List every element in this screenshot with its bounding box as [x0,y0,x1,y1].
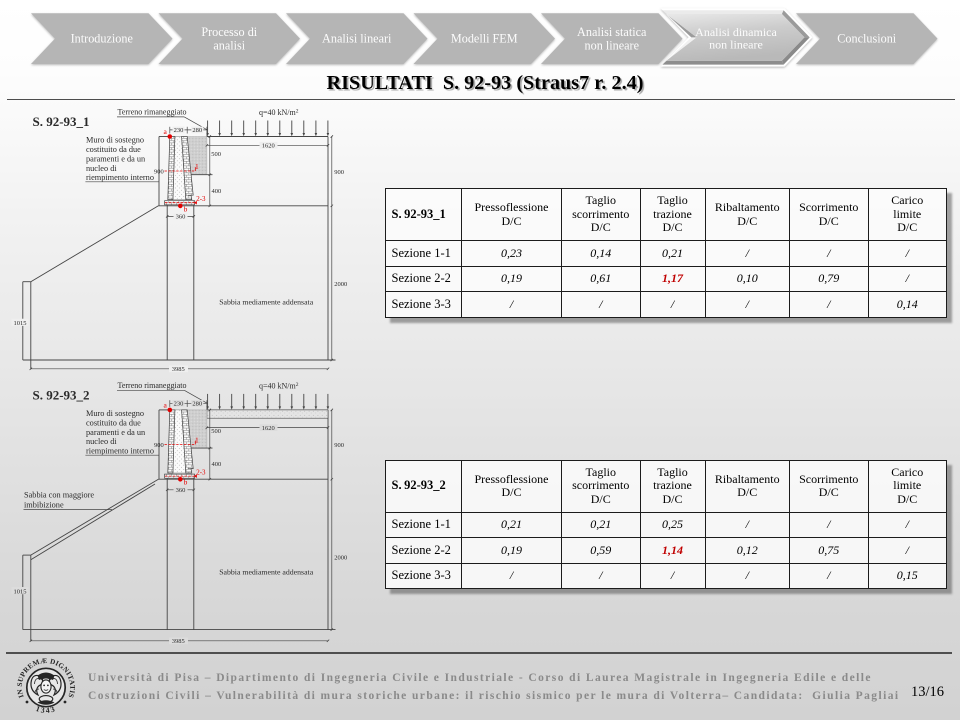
svg-text:1015: 1015 [14,320,27,327]
svg-text:Muro di sostegno: Muro di sostegno [86,136,144,145]
svg-text:230: 230 [174,127,184,134]
svg-text:a: a [163,127,167,136]
svg-text:non lineare: non lineare [585,39,639,53]
svg-text:Muro di sostegno: Muro di sostegno [86,409,144,418]
svg-text:280: 280 [192,127,202,134]
svg-text:280: 280 [192,401,202,408]
svg-text:900: 900 [154,442,164,449]
svg-text:S. 92-93_1: S. 92-93_1 [33,114,90,129]
svg-text:Terreno rimaneggiato: Terreno rimaneggiato [118,108,187,117]
svg-text:imbibizione: imbibizione [24,500,64,509]
svg-text:a: a [163,401,167,410]
svg-text:Analisi lineari: Analisi lineari [322,32,392,46]
svg-text:paramenti e da un: paramenti e da un [86,428,146,437]
svg-text:q=40 kN/m2: q=40 kN/m2 [259,108,299,117]
svg-text:1015: 1015 [14,589,27,596]
svg-text:Processo di: Processo di [201,25,257,39]
svg-text:Conclusioni: Conclusioni [837,32,897,46]
svg-text:Sabbia mediamente addensata: Sabbia mediamente addensata [219,298,313,307]
svg-text:paramenti e da un: paramenti e da un [86,154,146,163]
svg-text:Terreno rimaneggiato: Terreno rimaneggiato [118,381,187,390]
svg-text:nucleo di: nucleo di [86,164,117,173]
svg-text:1: 1 [195,435,199,444]
svg-text:360: 360 [176,487,186,494]
svg-text:500: 500 [211,428,221,435]
svg-text:non lineare: non lineare [709,37,763,51]
svg-text:2-3: 2-3 [196,468,206,476]
svg-text:400: 400 [212,188,222,195]
svg-text:2000: 2000 [334,555,347,562]
svg-text:costituito da due: costituito da due [86,418,141,427]
svg-text:Modelli FEM: Modelli FEM [451,32,518,46]
svg-text:riempimento interno: riempimento interno [86,173,154,182]
svg-text:1620: 1620 [262,143,275,150]
svg-text:900: 900 [334,442,344,449]
svg-text:q=40 kN/m2: q=40 kN/m2 [259,382,299,391]
svg-text:400: 400 [212,461,222,468]
svg-text:1: 1 [195,162,199,171]
svg-text:analisi: analisi [213,39,245,53]
svg-text:b: b [184,204,188,213]
svg-text:nucleo di: nucleo di [86,437,117,446]
svg-text:b: b [184,478,188,487]
svg-text:costituito da due: costituito da due [86,145,141,154]
svg-text:Sabbia mediamente addensata: Sabbia mediamente addensata [219,568,313,577]
svg-text:230: 230 [174,401,184,408]
svg-text:Analisi statica: Analisi statica [577,25,647,39]
svg-text:2000: 2000 [334,281,347,288]
svg-text:360: 360 [176,214,186,221]
svg-text:3985: 3985 [172,638,185,645]
svg-text:900: 900 [334,169,344,176]
svg-text:3985: 3985 [172,366,185,373]
svg-text:S. 92-93_2: S. 92-93_2 [33,387,90,402]
svg-text:riempimento interno: riempimento interno [86,447,154,456]
svg-text:Introduzione: Introduzione [71,32,133,46]
svg-text:1620: 1620 [262,425,275,432]
svg-text:Sabbia con maggiore: Sabbia con maggiore [24,491,94,500]
svg-text:500: 500 [211,151,221,158]
svg-text:2-3: 2-3 [196,195,206,203]
svg-text:900: 900 [154,169,164,176]
